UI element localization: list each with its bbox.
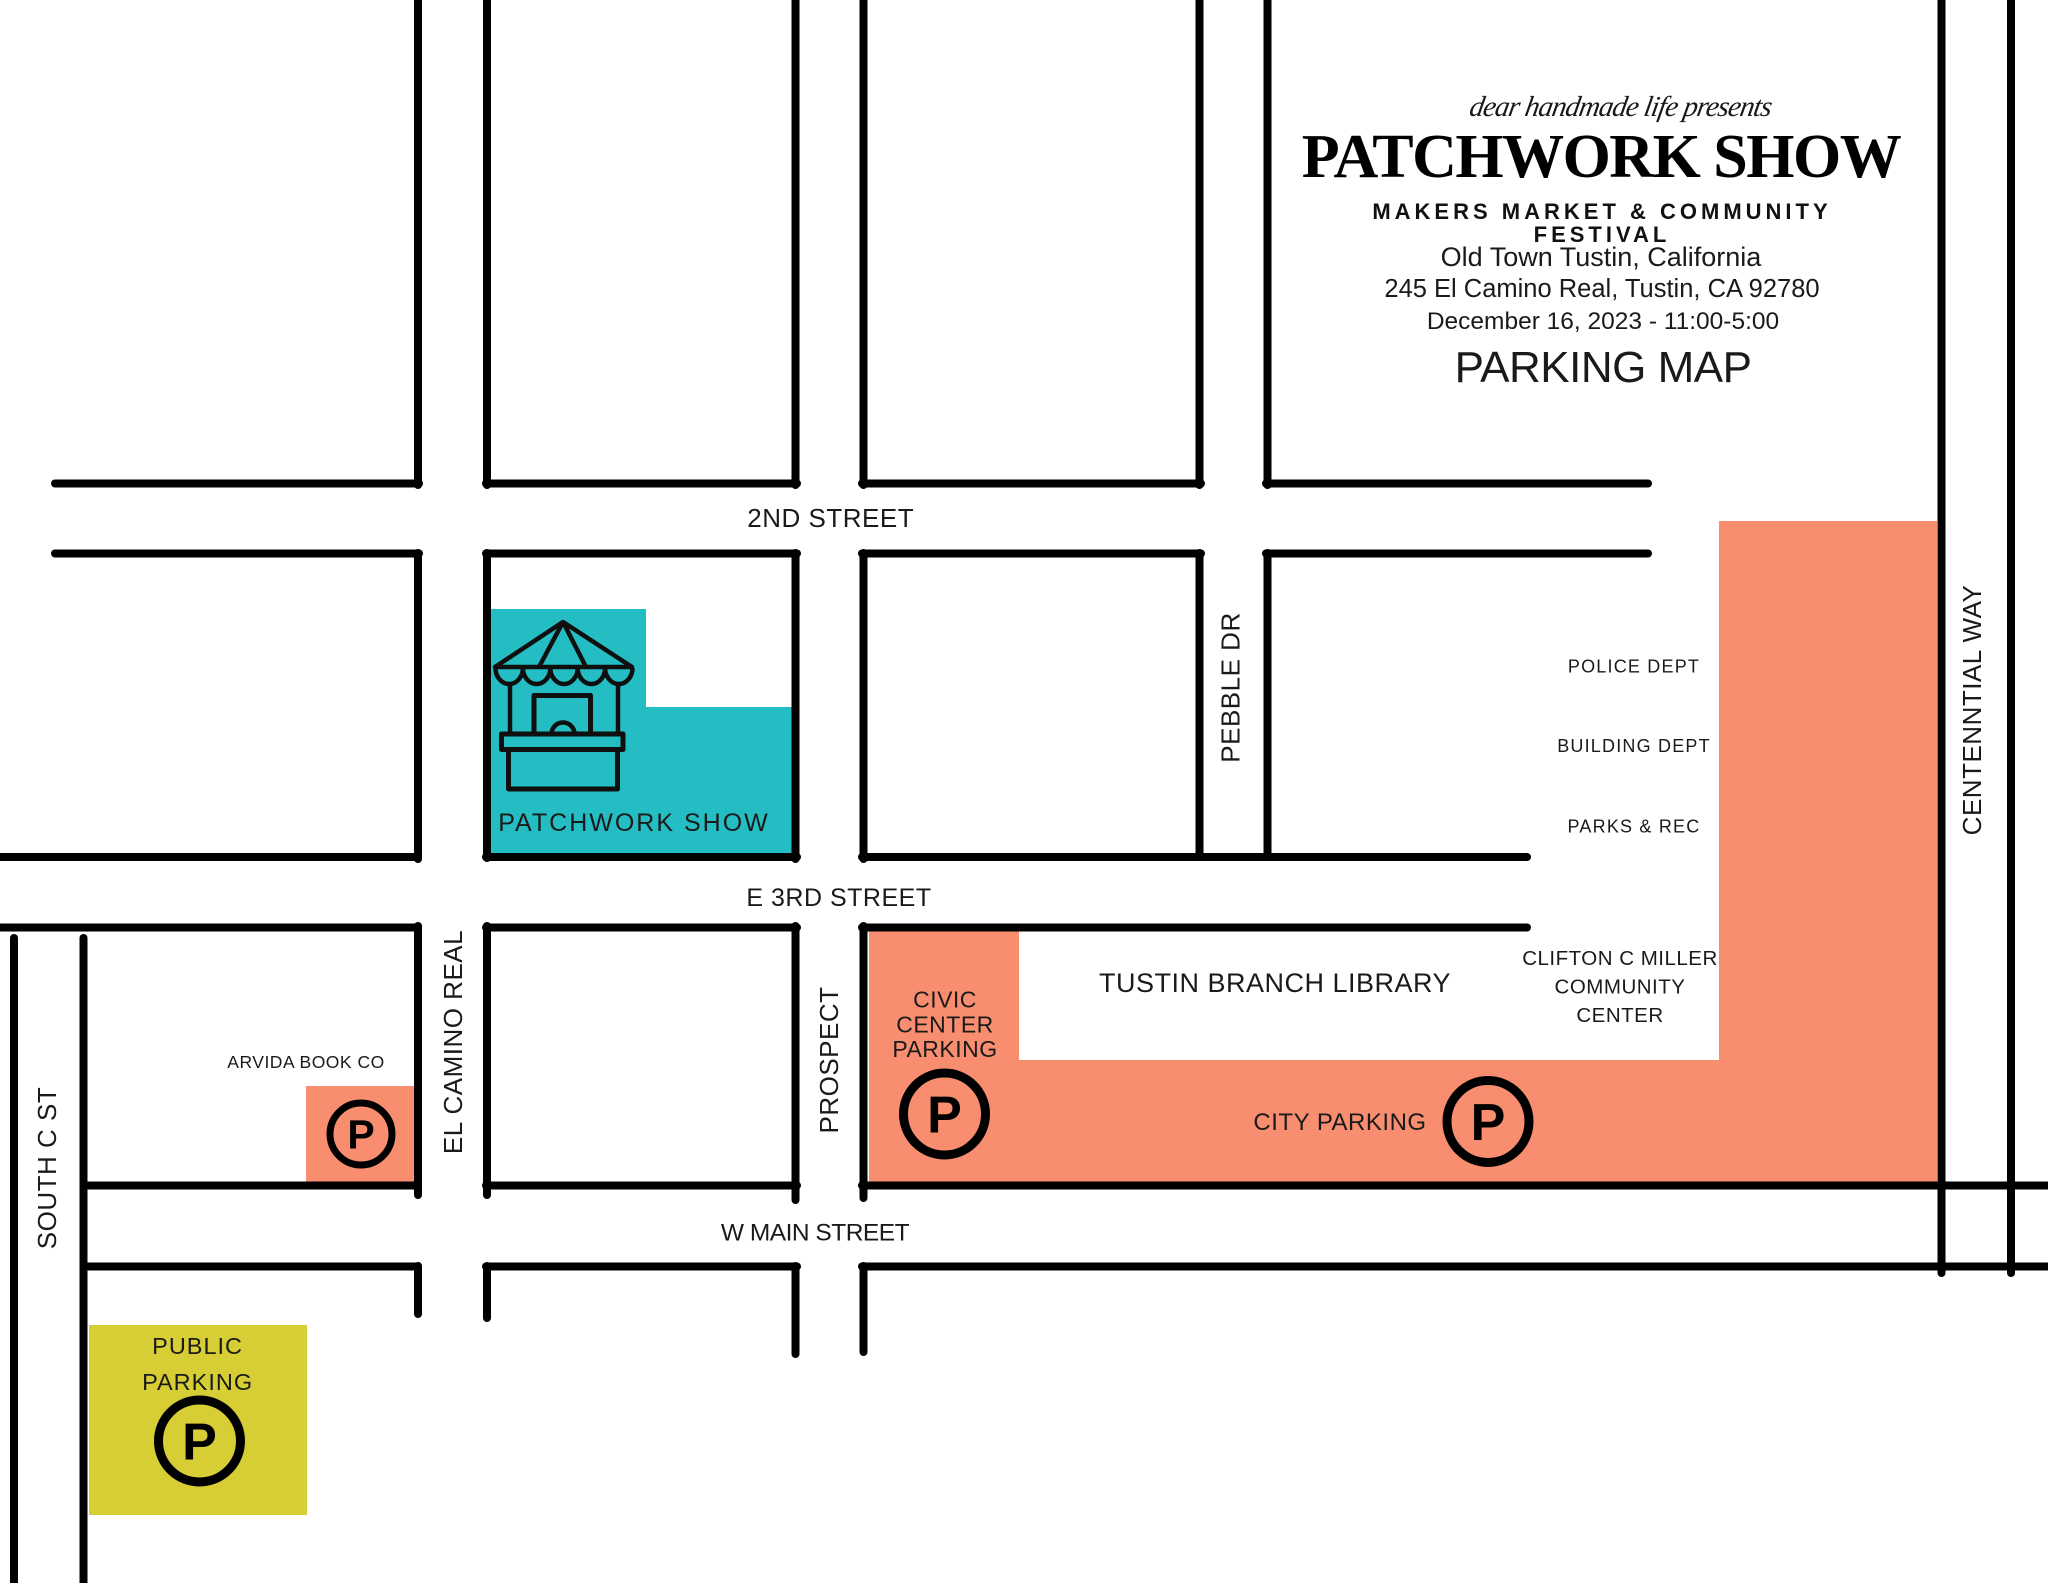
svg-text:MAKERS MARKET & COMMUNITY: MAKERS MARKET & COMMUNITY <box>1372 199 1831 224</box>
svg-text:PARKS & REC: PARKS & REC <box>1568 817 1701 837</box>
svg-text:2ND STREET: 2ND STREET <box>747 503 914 533</box>
svg-text:W MAIN STREET: W MAIN STREET <box>721 1220 910 1247</box>
svg-text:245 El Camino Real, Tustin, CA: 245 El Camino Real, Tustin, CA 92780 <box>1384 275 1819 303</box>
svg-text:P: P <box>347 1112 374 1158</box>
svg-text:EL CAMINO REAL: EL CAMINO REAL <box>438 930 468 1154</box>
svg-text:SOUTH C ST: SOUTH C ST <box>32 1087 62 1249</box>
svg-text:P: P <box>182 1414 217 1472</box>
svg-text:December 16, 2023 - 11:00-5:00: December 16, 2023 - 11:00-5:00 <box>1427 308 1779 335</box>
svg-text:PEBBLE DR: PEBBLE DR <box>1216 612 1246 762</box>
svg-text:P: P <box>1471 1094 1506 1152</box>
svg-text:CIVIC: CIVIC <box>913 987 977 1013</box>
svg-text:PUBLIC: PUBLIC <box>152 1333 243 1359</box>
svg-text:ARVIDA BOOK CO: ARVIDA BOOK CO <box>227 1052 384 1072</box>
svg-text:P: P <box>927 1087 962 1145</box>
svg-text:dear handmade life presents: dear handmade life presents <box>1467 91 1775 123</box>
svg-text:TUSTIN BRANCH LIBRARY: TUSTIN BRANCH LIBRARY <box>1099 968 1451 998</box>
svg-text:PROSPECT: PROSPECT <box>814 986 844 1133</box>
svg-text:CLIFTON C MILLER: CLIFTON C MILLER <box>1522 947 1718 970</box>
svg-text:CITY PARKING: CITY PARKING <box>1253 1109 1426 1136</box>
svg-text:CENTER: CENTER <box>1576 1004 1663 1027</box>
svg-text:PATCHWORK SHOW: PATCHWORK SHOW <box>1302 123 1902 191</box>
svg-text:PARKING: PARKING <box>892 1036 997 1062</box>
svg-text:PARKING: PARKING <box>142 1369 253 1395</box>
svg-text:CENTENNTIAL WAY: CENTENNTIAL WAY <box>1957 585 1987 836</box>
svg-text:BUILDING DEPT: BUILDING DEPT <box>1557 736 1711 756</box>
svg-text:COMMUNITY: COMMUNITY <box>1555 976 1686 999</box>
svg-text:POLICE DEPT: POLICE DEPT <box>1568 657 1700 677</box>
svg-text:CENTER: CENTER <box>896 1012 994 1038</box>
svg-text:Old Town Tustin, California: Old Town Tustin, California <box>1441 242 1763 272</box>
svg-text:PATCHWORK SHOW: PATCHWORK SHOW <box>498 809 770 837</box>
svg-text:PARKING MAP: PARKING MAP <box>1455 343 1752 392</box>
svg-text:E 3RD STREET: E 3RD STREET <box>746 884 931 912</box>
